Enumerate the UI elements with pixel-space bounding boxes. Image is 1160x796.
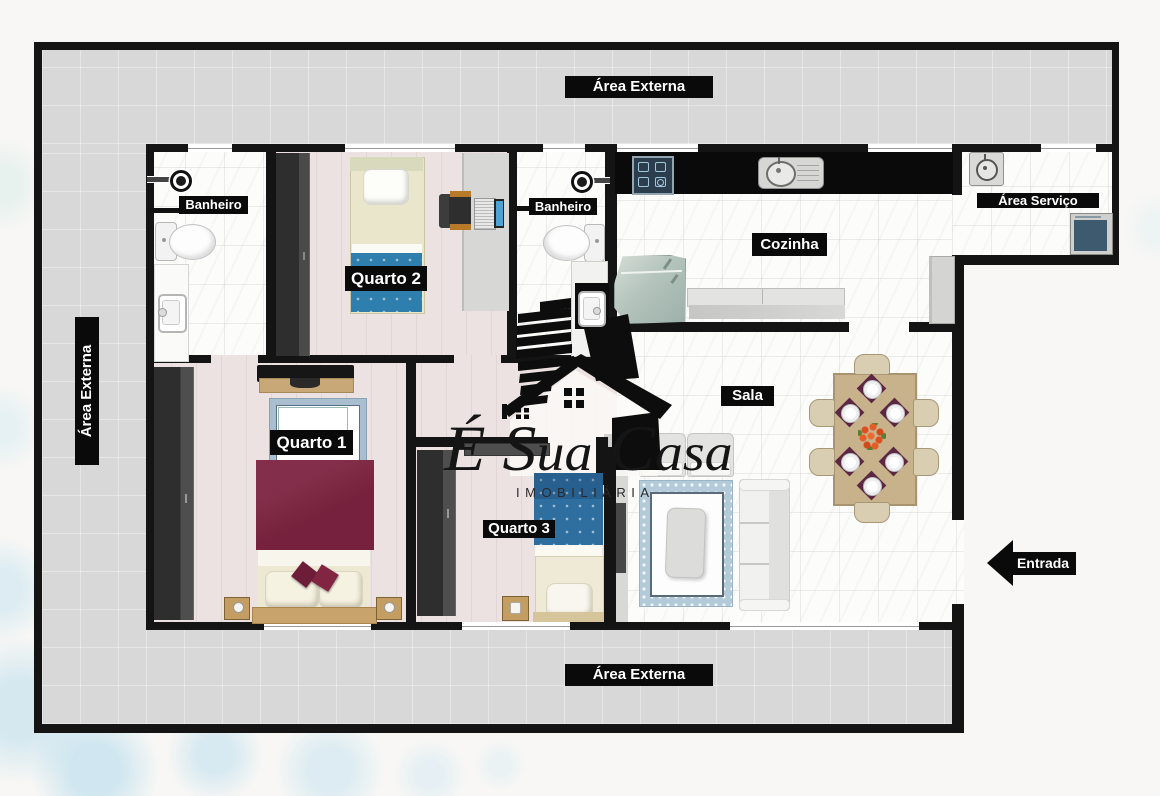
svg-text:IMOBILIÁRIA: IMOBILIÁRIA <box>516 485 655 500</box>
svg-text:É Sua Casa: É Sua Casa <box>443 414 733 485</box>
